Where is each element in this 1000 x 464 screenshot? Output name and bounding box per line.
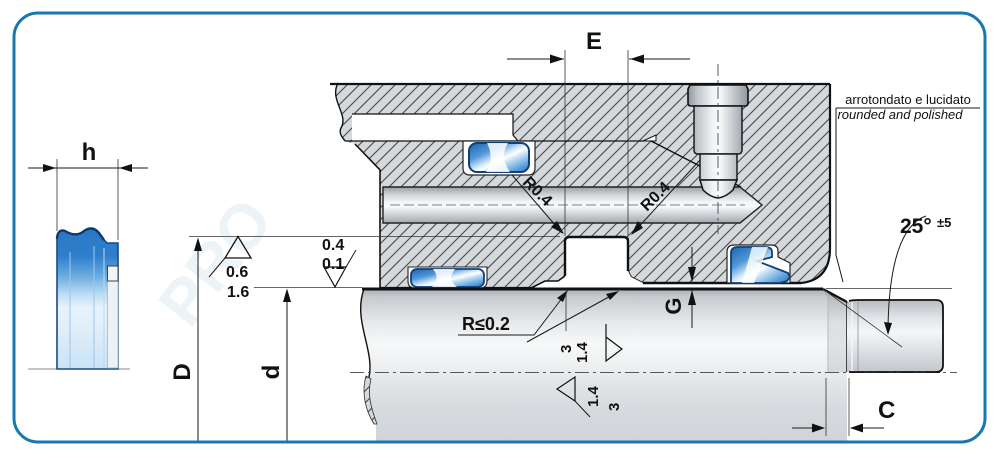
static-oring [463, 141, 535, 175]
finish-groove-upper-rt: 3 [558, 345, 575, 353]
dim-C-label: C [878, 397, 895, 424]
note-italian: arrotondato e lucidato [845, 92, 971, 107]
note-english: rounded and polished [837, 107, 963, 122]
rod [361, 289, 847, 441]
chamfer-angle-tolerance: ±5 [937, 215, 951, 230]
finish-groove-lower-rt: 3 [606, 403, 623, 411]
dim-h-extlines [57, 159, 118, 240]
bottom-seal [408, 267, 487, 288]
seal-back-strip [108, 281, 119, 368]
finish-bore-ra: 0.6 [226, 264, 248, 281]
dim-G-label: G [661, 297, 686, 314]
dim-d-arrow [283, 289, 291, 303]
finish-groove-upper-ra: 1.4 [574, 341, 591, 363]
finish-groove-lower-ra: 1.4 [585, 385, 602, 407]
joint-recess [352, 114, 518, 141]
note-leader [836, 108, 843, 282]
chamfer-angle-value: 25° [900, 215, 932, 238]
dim-E-label: E [586, 28, 602, 55]
finish-rod-ra: 0.4 [322, 237, 344, 254]
rod-pilot-end [847, 300, 943, 372]
dim-E-arrow-right [630, 55, 644, 64]
dim-h-label: h [82, 139, 97, 166]
finish-bore-rt: 1.6 [227, 284, 249, 301]
dim-h-arrow-left [43, 164, 56, 172]
dim-h-arrow-right [119, 164, 132, 172]
seal-installation-drawing: PRO PRO [0, 0, 1000, 464]
seal-profile-view: h [28, 139, 148, 369]
rmax-label: R≤0.2 [462, 314, 510, 334]
watermark-text: PRO [144, 185, 286, 339]
dim-d-label: d [258, 365, 285, 380]
dim-C-arrow-right [850, 424, 863, 433]
dim-h: h [28, 139, 148, 240]
pilot-body [847, 300, 943, 372]
dim-D-label: D [169, 363, 196, 380]
finish-rod: 0.4 0.1 [318, 237, 360, 287]
technical-drawing-canvas: PRO PRO [0, 0, 1000, 464]
rod-body [361, 289, 847, 441]
seal-notch [108, 266, 119, 281]
dim-d: d [254, 288, 362, 442]
dim-E-arrow-left [550, 55, 564, 64]
note-rounded-polished: arrotondato e lucidato rounded and polis… [836, 92, 980, 282]
